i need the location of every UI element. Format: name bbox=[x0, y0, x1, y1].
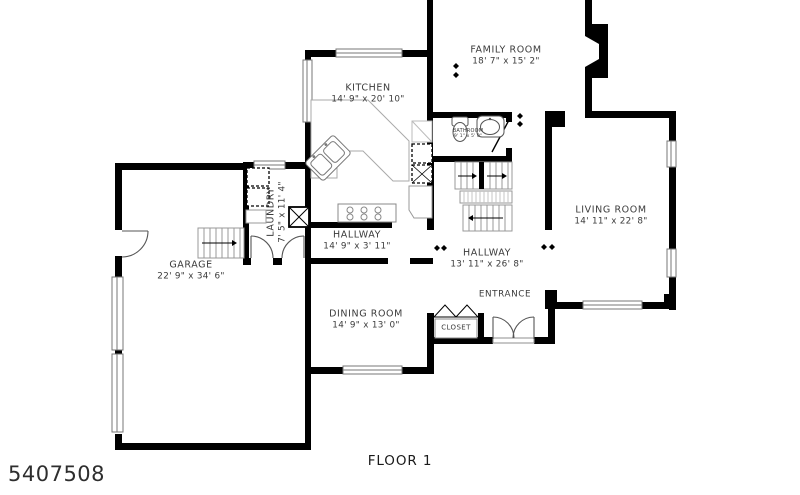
room-label-hallway-upper: HALLWAY 14' 9" x 3' 11" bbox=[323, 230, 390, 253]
room-name: GARAGE bbox=[157, 260, 224, 272]
room-label-laundry: LAUNDRY 7' 5" x 11' 4" bbox=[266, 181, 289, 243]
room-label-garage: GARAGE 22' 9" x 34' 6" bbox=[157, 260, 224, 283]
garage-door-panels bbox=[112, 277, 123, 432]
room-label-bathroom: BATHROOM 9' 1" x 5' 0" bbox=[453, 128, 484, 140]
room-name: HALLWAY bbox=[323, 230, 390, 242]
room-dims: 13' 11" x 26' 8" bbox=[450, 259, 523, 270]
laundry-counter bbox=[246, 210, 266, 223]
room-label-kitchen: KITCHEN 14' 9" x 20' 10" bbox=[331, 83, 404, 106]
room-name: LAUNDRY bbox=[266, 181, 278, 243]
refrigerator-icon bbox=[409, 121, 432, 218]
floor-title: FLOOR 1 bbox=[368, 453, 433, 469]
room-label-family-room: FAMILY ROOM 18' 7" x 15' 2" bbox=[470, 45, 541, 68]
room-label-hallway-main: HALLWAY 13' 11" x 26' 8" bbox=[450, 248, 523, 271]
floor-plan: FAMILY ROOM 18' 7" x 15' 2" KITCHEN 14' … bbox=[0, 0, 800, 495]
room-dims: 22' 9" x 34' 6" bbox=[157, 271, 224, 282]
stove-icon bbox=[338, 204, 396, 222]
room-label-dining-room: DINING ROOM 14' 9" x 13' 0" bbox=[329, 309, 403, 332]
room-dims: 14' 11" x 22' 8" bbox=[574, 216, 647, 227]
room-label-entrance: ENTRANCE bbox=[479, 290, 531, 301]
room-label-closet: CLOSET bbox=[441, 324, 471, 333]
room-label-living-room: LIVING ROOM 14' 11" x 22' 8" bbox=[574, 205, 647, 228]
room-dims: 14' 9" x 20' 10" bbox=[331, 94, 404, 105]
room-dims: 9' 1" x 5' 0" bbox=[453, 134, 484, 140]
kitchen-island-sink bbox=[305, 100, 409, 181]
room-name: DINING ROOM bbox=[329, 309, 403, 321]
room-name: CLOSET bbox=[441, 324, 471, 333]
room-dims: 14' 9" x 13' 0" bbox=[329, 320, 403, 331]
room-name: HALLWAY bbox=[450, 248, 523, 260]
room-name: LIVING ROOM bbox=[574, 205, 647, 217]
room-dims: 7' 5" x 11' 4" bbox=[277, 181, 288, 243]
floor-plan-linework bbox=[0, 0, 800, 495]
entrance-doors bbox=[493, 317, 534, 343]
garage-staircase bbox=[198, 228, 244, 258]
room-name: KITCHEN bbox=[331, 83, 404, 95]
listing-number: 5407508 bbox=[8, 462, 105, 486]
room-name: FAMILY ROOM bbox=[470, 45, 541, 57]
utility-sink-icon bbox=[289, 207, 309, 227]
room-dims: 18' 7" x 15' 2" bbox=[470, 56, 541, 67]
main-staircase bbox=[455, 162, 512, 231]
closet-bifold-doors bbox=[434, 305, 478, 338]
fireplace-icon bbox=[585, 24, 608, 78]
room-name: ENTRANCE bbox=[479, 290, 531, 301]
room-dims: 14' 9" x 3' 11" bbox=[323, 241, 390, 252]
